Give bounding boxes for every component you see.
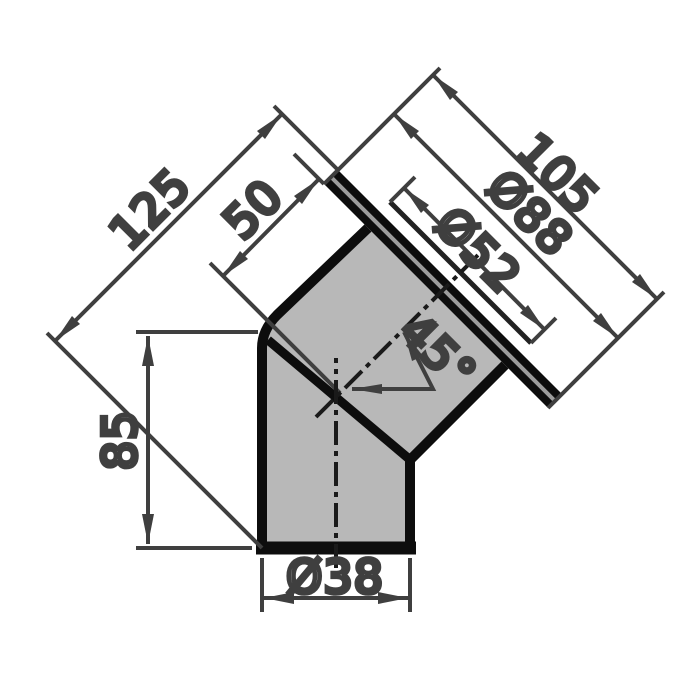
label-125: 125 (99, 158, 201, 260)
elbow-fitting-drawing: 125 50 105 Ø88 Ø52 45° 85 Ø38 (0, 0, 700, 700)
ext-flange-se (548, 292, 664, 408)
arrow-85-down (142, 514, 154, 544)
arrow-85-up (142, 336, 154, 366)
technical-drawing-canvas: 125 50 105 Ø88 Ø52 45° 85 Ø38 (0, 0, 700, 700)
ext-flange-nw (324, 68, 440, 184)
label-dia-38: Ø38 (286, 550, 384, 604)
ext-125-ne (274, 106, 338, 170)
label-85: 85 (93, 410, 147, 471)
ext-125-sw (47, 333, 262, 548)
label-50: 50 (213, 169, 294, 250)
